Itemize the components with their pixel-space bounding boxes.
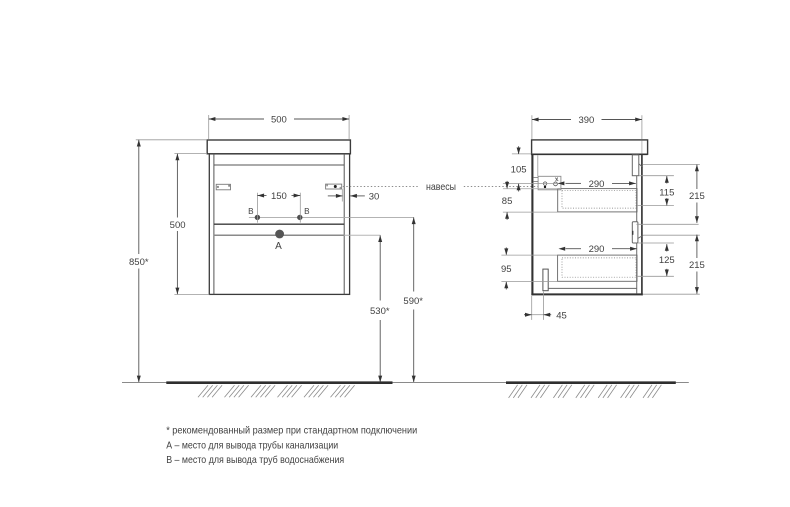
svg-text:* рекомендованный размер при с: * рекомендованный размер при стандартном… xyxy=(166,424,417,436)
svg-text:390: 390 xyxy=(578,115,594,126)
svg-text:115: 115 xyxy=(659,188,674,199)
svg-text:125: 125 xyxy=(659,255,675,266)
svg-text:B: B xyxy=(248,207,254,216)
svg-text:45: 45 xyxy=(556,310,567,321)
svg-text:850*: 850* xyxy=(129,257,149,268)
svg-text:150: 150 xyxy=(271,191,287,202)
svg-text:500: 500 xyxy=(170,220,186,231)
svg-text:500: 500 xyxy=(271,115,287,126)
svg-text:В – место для вывода труб водо: В – место для вывода труб водоснабжения xyxy=(166,454,344,466)
svg-text:A: A xyxy=(275,241,282,252)
svg-text:215: 215 xyxy=(689,191,705,202)
svg-text:530*: 530* xyxy=(370,306,390,317)
svg-text:B: B xyxy=(304,207,310,216)
svg-text:А – место для вывода трубы кан: А – место для вывода трубы канализации xyxy=(166,439,338,451)
svg-text:590*: 590* xyxy=(403,296,423,307)
svg-text:95: 95 xyxy=(501,264,512,275)
svg-text:290: 290 xyxy=(589,179,605,190)
svg-text:290: 290 xyxy=(589,244,605,255)
svg-text:105: 105 xyxy=(511,164,527,175)
svg-text:85: 85 xyxy=(502,196,513,207)
svg-text:30: 30 xyxy=(369,192,380,203)
svg-text:навесы: навесы xyxy=(426,182,456,193)
svg-text:215: 215 xyxy=(689,260,705,271)
